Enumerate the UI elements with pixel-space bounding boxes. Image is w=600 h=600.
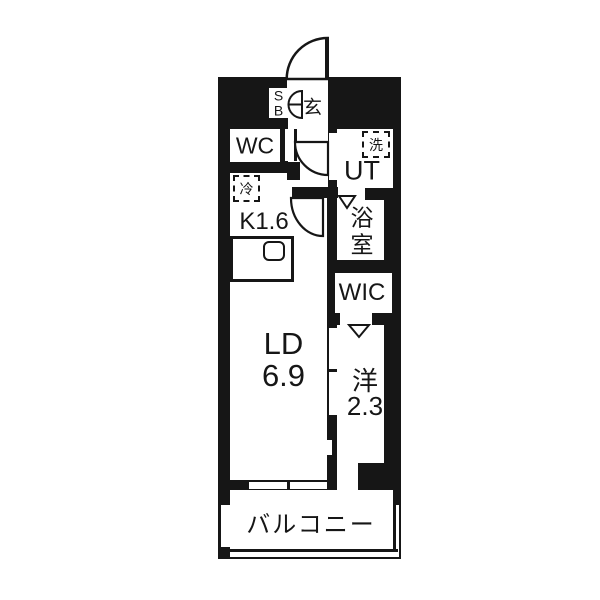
- shoebox-label: SB: [274, 89, 283, 118]
- wall-under-shoebox: [269, 118, 288, 129]
- kitchen-sink: [263, 241, 285, 261]
- floor-plan: SB 玄 WC 洗 UT 冷 K1.6 浴室 WIC LD6.9 洋2.3 バル…: [0, 0, 600, 600]
- sliding-door-slot-2: [329, 372, 337, 415]
- living-label: LD6.9: [262, 328, 305, 392]
- ut-bath-opening: [337, 186, 365, 200]
- bathroom-label: 浴室: [351, 205, 374, 258]
- balcony-rail-inner-bottom: [230, 549, 398, 552]
- kitchen-label: K1.6: [239, 208, 288, 236]
- entrance-doorway: [287, 77, 328, 90]
- entrance-label: 玄: [303, 92, 322, 119]
- wc-door: [285, 129, 294, 161]
- wic-opening: [340, 313, 372, 325]
- wall-hall-bottom: [292, 187, 339, 199]
- balcony-rail-outer-bottom: [218, 557, 401, 560]
- window-pane-1: [248, 481, 288, 490]
- balcony-rail-inner-right: [393, 505, 396, 551]
- balcony-rail-outer-right: [399, 505, 402, 559]
- entrance-door-leaf-icon: [325, 37, 329, 80]
- kitchen-counter: [230, 236, 294, 282]
- wall-wc-side: [294, 129, 298, 161]
- wc-label: WC: [236, 133, 274, 160]
- side-window-slot: [221, 505, 230, 547]
- western-room-label: 洋2.3: [347, 369, 383, 419]
- sliding-door-slot-1: [329, 328, 337, 369]
- ut-label: UT: [344, 156, 380, 187]
- ut-door-opening: [329, 133, 337, 180]
- western-room-floor-ext: [337, 463, 358, 490]
- window-pane-2: [289, 481, 329, 490]
- entrance-door-swing-icon: [287, 38, 328, 79]
- balcony-label: バルコニー: [246, 505, 376, 540]
- washer-label: 洗: [369, 135, 383, 155]
- fridge-label: 冷: [240, 179, 254, 199]
- wall-stub-hall: [287, 162, 300, 180]
- wic-label: WIC: [339, 279, 386, 307]
